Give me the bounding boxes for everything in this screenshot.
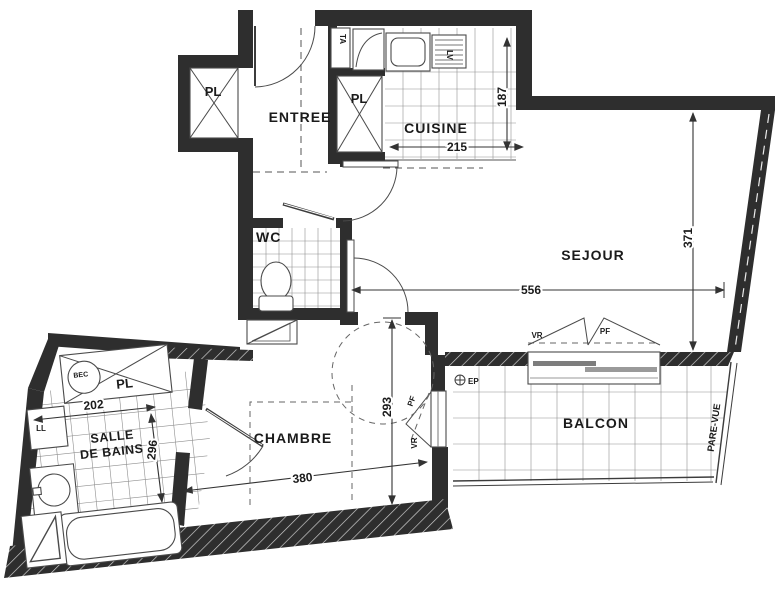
walls bbox=[4, 10, 775, 578]
svg-text:215: 215 bbox=[447, 140, 467, 154]
entry-door bbox=[255, 26, 315, 87]
chambre-door bbox=[347, 240, 408, 312]
label-pf-sejour: PF bbox=[600, 327, 610, 336]
label-salle-de-bains: SALLE DE BAINS bbox=[78, 427, 144, 463]
dimension-chambre-width: 380 bbox=[184, 462, 427, 491]
svg-text:187: 187 bbox=[495, 87, 509, 107]
label-cuisine: CUISINE bbox=[404, 120, 468, 136]
dimension-sejour-width: 556 bbox=[352, 282, 724, 298]
svg-text:293: 293 bbox=[380, 397, 394, 417]
technical-shaft bbox=[247, 320, 297, 344]
svg-text:DE BAINS: DE BAINS bbox=[79, 442, 144, 463]
svg-text:556: 556 bbox=[521, 283, 541, 297]
label-chambre: CHAMBRE bbox=[254, 430, 333, 446]
svg-text:296: 296 bbox=[144, 439, 160, 461]
label-entree: ENTREE bbox=[269, 109, 332, 125]
wc-door bbox=[283, 204, 334, 219]
label-vr-chambre: VR bbox=[410, 437, 419, 448]
washbasin bbox=[30, 464, 79, 518]
entry-cabinet bbox=[353, 29, 384, 70]
toilet bbox=[259, 262, 293, 311]
placard-cuisine bbox=[337, 76, 382, 152]
label-pl-sdb: PL bbox=[115, 375, 133, 392]
svg-text:371: 371 bbox=[681, 228, 695, 248]
floor-plan-page: 187 215 371 556 380 293 202 296 ENTREE C… bbox=[0, 0, 782, 600]
label-wc: WC bbox=[256, 229, 281, 245]
label-balcon: BALCON bbox=[563, 415, 629, 431]
floor-plan-drawing: 187 215 371 556 380 293 202 296 ENTREE C… bbox=[0, 0, 782, 600]
label-ll: LL bbox=[36, 424, 46, 433]
label-pf-chambre: PF bbox=[406, 395, 418, 408]
porte-fenetre-sejour bbox=[528, 318, 660, 384]
corner-unit bbox=[21, 512, 67, 568]
label-pl-entree: PL bbox=[205, 84, 222, 99]
label-vr-sejour: VR bbox=[531, 331, 542, 340]
label-ta: TA bbox=[338, 34, 347, 44]
dimension-sdb-depth: 296 bbox=[144, 414, 162, 502]
label-lv: LV bbox=[445, 50, 454, 60]
label-ep: EP bbox=[468, 377, 479, 386]
placard-entree bbox=[190, 68, 238, 138]
dimension-cuisine-width: 215 bbox=[390, 140, 523, 154]
kitchen-sink bbox=[386, 33, 430, 71]
label-sejour: SEJOUR bbox=[561, 247, 625, 263]
rainwater-drain bbox=[455, 375, 465, 385]
washing-machine bbox=[27, 406, 68, 450]
label-pl-cuisine: PL bbox=[351, 91, 368, 106]
svg-text:202: 202 bbox=[83, 397, 105, 413]
dimension-sejour-depth: 371 bbox=[681, 113, 695, 350]
door-entree-sejour bbox=[343, 161, 398, 221]
svg-text:380: 380 bbox=[292, 470, 314, 486]
dimension-chambre-depth: 293 bbox=[380, 318, 401, 506]
dimension-cuisine-depth: 187 bbox=[495, 38, 509, 150]
